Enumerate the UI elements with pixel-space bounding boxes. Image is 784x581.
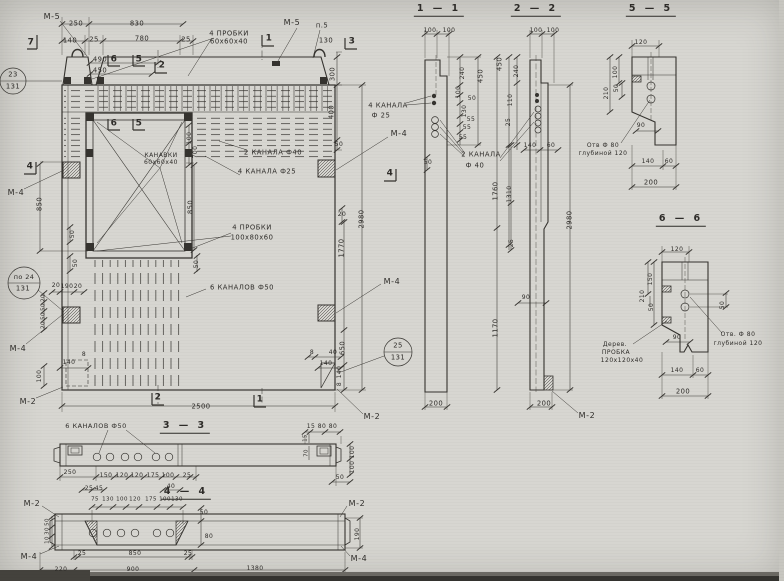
dimension-label: 850 — [37, 197, 44, 211]
dimension-label: 120 — [116, 473, 129, 479]
dimension-label: 131 — [391, 355, 405, 362]
dimension-label: 50 — [720, 301, 726, 309]
dimension-label: 50 — [194, 260, 200, 268]
dimension-label: 50 — [70, 230, 76, 238]
annotation: 4 КАНАЛА Ф25 — [238, 169, 296, 176]
dimension-label: 780 — [135, 36, 149, 43]
cut-mark: 1 — [266, 35, 273, 44]
dimension-label: 250 — [69, 21, 83, 28]
dimension-label: 850 — [188, 200, 195, 214]
dimension-label: 400 — [329, 105, 336, 119]
dimension-label: 175 — [145, 497, 157, 503]
dimension-label: 450 — [478, 69, 485, 83]
dimension-label: 130 — [171, 497, 183, 503]
dimension-label: 100 — [547, 28, 560, 34]
member-label: М-4 — [384, 278, 401, 286]
section-title: 2 — 2 — [511, 4, 561, 17]
cut-mark: 5 — [136, 56, 143, 65]
dimension-label: 25 — [509, 239, 515, 247]
member-label: М-5 — [284, 19, 301, 27]
cut-mark: 1 — [257, 396, 264, 405]
dimension-label: п.5 — [316, 23, 328, 30]
annotation: ПРОБКА — [602, 350, 630, 356]
dimension-label: 8 — [82, 352, 86, 358]
member-label: М-2 — [20, 398, 37, 406]
dimension-label: 50 — [45, 518, 51, 526]
dimension-label: 15 — [307, 424, 315, 430]
dimension-label: 25 — [183, 473, 191, 479]
dimension-label: 25 — [184, 551, 192, 557]
dimension-label: 250 — [64, 470, 77, 476]
annotation: Дерев. — [603, 342, 627, 348]
dimension-label: 50 — [649, 303, 655, 311]
dimension-label: 150 — [100, 473, 113, 479]
dimension-label: 20 — [41, 321, 47, 329]
dimension-label: 240 — [460, 67, 466, 80]
dimension-label: 1380 — [247, 566, 264, 572]
dimension-label: 90 — [673, 335, 681, 341]
dimension-label: 1310 — [507, 186, 513, 203]
dimension-label: 200 — [644, 180, 658, 187]
dimension-label: 210 — [640, 290, 646, 303]
dimension-label: 100 — [350, 446, 356, 459]
dimension-label: 90 — [522, 295, 530, 301]
dimension-label: 55 — [463, 125, 471, 131]
annotation: глубиной 120 — [714, 341, 763, 347]
cut-mark: 4 — [387, 170, 394, 179]
member-label: М-5 — [44, 13, 61, 21]
annotation: Отв. Ф 80 — [721, 332, 756, 338]
dimension-label: 120 — [129, 497, 141, 503]
dimension-label: 50 — [73, 259, 79, 267]
dimension-label: 60 — [696, 368, 704, 374]
dimension-label: 1770 — [339, 239, 346, 258]
cut-mark: 2 — [155, 394, 162, 403]
dimension-label: 150 — [648, 273, 654, 286]
dimension-label: 210 — [604, 87, 610, 100]
section-6-6 — [633, 246, 729, 399]
dimension-label: 50 — [335, 142, 343, 148]
dimension-label: 20 — [74, 284, 82, 290]
dimension-label: 80 — [205, 534, 213, 540]
annotation: 2 КАНАЛА Ф40 — [244, 150, 302, 157]
dimension-label: 175 — [147, 473, 160, 479]
member-label: М-4 — [21, 553, 38, 561]
dimension-label: 140 — [63, 38, 77, 45]
member-label: М-4 — [391, 130, 408, 138]
annotation: 100х80х60 — [231, 235, 274, 242]
dimension-label: 2980 — [567, 211, 574, 230]
annotation: 60х60х40 — [144, 160, 178, 166]
dimension-label: 200 — [429, 401, 443, 408]
dimension-label: 130 — [319, 38, 333, 45]
dimension-label: 100 — [159, 497, 171, 503]
dimension-label: 2500 — [192, 404, 211, 411]
dimension-label: 80 — [318, 424, 326, 430]
dimension-label: 55 — [467, 117, 475, 123]
member-label: М-4 — [8, 189, 25, 197]
dimension-label: 300 — [330, 67, 337, 81]
cut-mark: 3 — [349, 38, 356, 47]
dimension-label: 110 — [508, 94, 514, 107]
dimension-label: 100 — [187, 132, 193, 145]
dimension-label: 70 — [304, 449, 310, 457]
member-label: М-4 — [351, 555, 368, 563]
dimension-label: 20 — [41, 294, 47, 302]
dimension-label: 650 — [340, 341, 347, 355]
dimension-label: 830 — [130, 21, 144, 28]
annotation: 4 ПРОБКИ — [209, 31, 249, 38]
dimension-label: 450 — [497, 57, 504, 71]
dimension-label: 450 — [93, 68, 107, 75]
dimension-label: 55 — [459, 135, 467, 141]
dimension-label: 15 — [303, 434, 309, 442]
dimension-label: 200 — [676, 389, 690, 396]
member-label: М-2 — [24, 500, 41, 508]
cut-mark: 4 — [27, 163, 34, 172]
dimension-label: 10 — [45, 536, 51, 544]
cut-mark: 5 — [136, 120, 143, 129]
dimension-label: 140 — [337, 366, 343, 379]
dimension-label: 50 — [468, 96, 476, 102]
dimension-label: 140 — [642, 159, 655, 165]
dimension-label: 80 — [329, 424, 337, 430]
annotation: 4 ПРОБКИ — [232, 225, 272, 232]
dimension-label: 25 — [181, 37, 190, 44]
dimension-label: 50 — [200, 510, 208, 516]
dimension-label: 120 — [635, 40, 648, 46]
dimension-label: 100 — [456, 86, 462, 99]
dimension-label: 100 — [613, 66, 619, 79]
dimension-label: 100 — [116, 497, 128, 503]
dimension-label: 700 — [193, 146, 199, 159]
dimension-label: 100 — [424, 28, 437, 34]
member-label: М-2 — [364, 413, 381, 421]
dimension-label: 50 — [336, 475, 344, 481]
cut-mark: 2 — [159, 62, 166, 71]
dimension-label: 45 — [95, 486, 103, 492]
dimension-label: 140 — [320, 361, 333, 367]
dimension-label: 100 — [443, 28, 456, 34]
dimension-label: 50 — [41, 312, 47, 320]
dimension-label: 20 — [338, 212, 346, 218]
dimension-label: 2980 — [359, 210, 366, 229]
blueprint-scan: М-525083014025780254 ПРОБКИ60х60х4049045… — [0, 0, 784, 581]
section-title: 6 — 6 — [656, 214, 706, 227]
dimension-label: 130 — [102, 497, 114, 503]
annotation: Ф 40 — [466, 163, 485, 170]
annotation: Отв Ф 80 — [587, 143, 619, 149]
dimension-label: 8 — [337, 382, 343, 386]
annotation: 2 КАНАЛА — [461, 152, 500, 159]
dimension-label: 140 — [63, 360, 76, 366]
annotation: 6 КАНАЛОВ Ф50 — [65, 423, 127, 430]
member-label: М-2 — [579, 412, 596, 420]
cut-mark: 6 — [111, 120, 118, 129]
cut-mark: 7 — [28, 39, 35, 48]
section-title: 5 — 5 — [626, 4, 676, 17]
dimension-label: 1170 — [493, 319, 500, 338]
dimension-label: 25 — [89, 37, 98, 44]
dimension-label: 131 — [16, 286, 30, 293]
annotation: 120х120х40 — [601, 358, 644, 364]
member-label: М-4 — [10, 345, 27, 353]
member-label: М-2 — [349, 500, 366, 508]
dimension-label: 490 — [93, 57, 107, 64]
dimension-label: 23 — [8, 72, 17, 79]
dimension-label: 50 — [614, 84, 620, 92]
main-view — [0, 17, 412, 414]
dimension-label: 140 — [671, 368, 684, 374]
cut-mark: 6 — [111, 56, 118, 65]
dimension-label: 40 — [329, 350, 337, 356]
annotation: 60х60х40 — [210, 39, 248, 46]
dimension-label: 131 — [6, 84, 20, 91]
section-5-5 — [607, 40, 679, 190]
dimension-label: 25 — [78, 551, 86, 557]
dimension-label: 8 — [310, 350, 314, 356]
dimension-label: 140 — [524, 143, 537, 149]
dimension-label: 60 — [547, 143, 555, 149]
annotation: 6 КАНАЛОВ Ф50 — [210, 285, 274, 292]
dimension-label: 100 — [350, 461, 356, 474]
dimension-label: 120 — [671, 247, 684, 253]
extension-lines — [40, 17, 366, 412]
dimension-label: 25 — [506, 118, 512, 126]
dimension-label: 25 — [85, 486, 93, 492]
dimension-label: 120 — [131, 473, 144, 479]
dimension-label: 850 — [129, 551, 142, 557]
annotation: глубиной 120 — [579, 151, 628, 157]
dimension-label: 220 — [55, 567, 68, 573]
dimension-label: по 24 — [14, 274, 35, 281]
dimension-label: 900 — [127, 567, 140, 573]
section-1-1 — [406, 30, 481, 410]
dimension-label: 1760 — [493, 182, 500, 201]
dimension-label: 60 — [665, 159, 673, 165]
dimension-label: 25 — [393, 343, 402, 350]
dimension-label: 75 — [91, 497, 99, 503]
dimension-label: 190 — [355, 528, 361, 541]
dimension-label: 100 — [37, 370, 43, 383]
dimension-label: 200 — [537, 401, 551, 408]
dimension-label: 30 — [45, 527, 51, 535]
annotation: Ф 25 — [372, 113, 391, 120]
dimension-label: 90 — [637, 123, 645, 129]
dimension-label: 50 — [41, 303, 47, 311]
annotation: 4 КАНАЛА — [368, 103, 407, 110]
dimension-label: 240 — [514, 65, 520, 78]
dimension-label: 20 — [52, 283, 60, 289]
section-title: 1 — 1 — [414, 4, 464, 17]
dimension-label: 50 — [424, 160, 432, 166]
dimension-label: 100 — [530, 28, 543, 34]
drawing-canvas — [0, 0, 784, 581]
dimension-label: 100 — [162, 473, 175, 479]
dimension-label: 190 — [61, 284, 74, 290]
section-title: 3 — 3 — [160, 421, 210, 434]
